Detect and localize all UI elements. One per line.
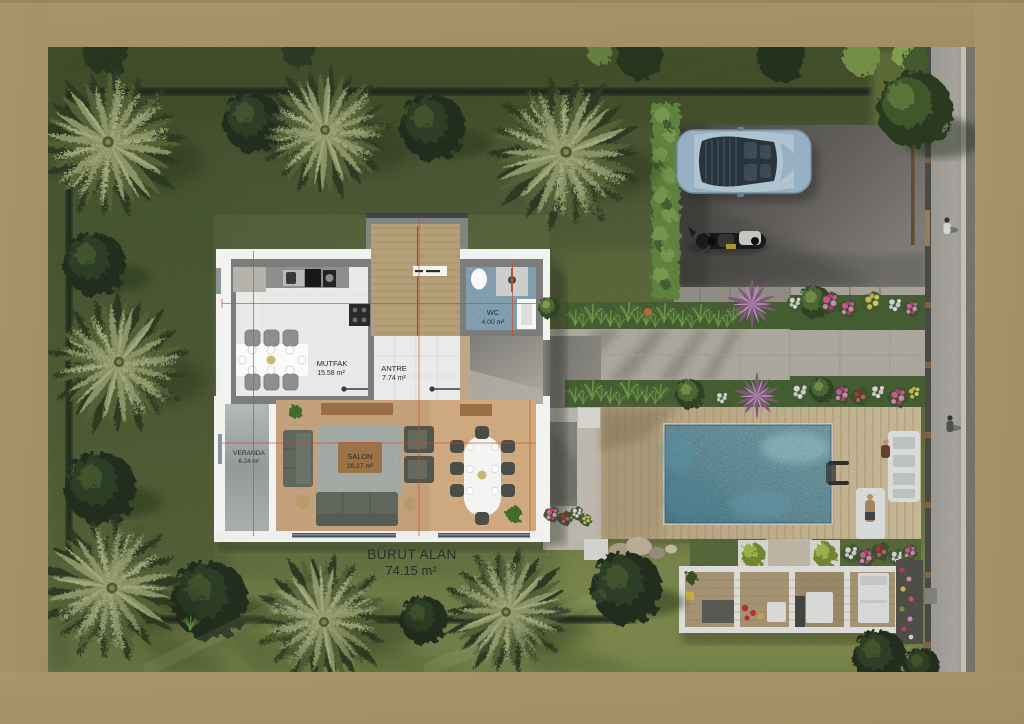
svg-text:SALON: SALON xyxy=(347,452,372,461)
svg-text:ANTRE: ANTRE xyxy=(381,364,407,373)
svg-text:15.58 m²: 15.58 m² xyxy=(317,370,345,377)
svg-text:26.27 m²: 26.27 m² xyxy=(347,463,375,470)
svg-text:4.00 m²: 4.00 m² xyxy=(481,319,505,326)
svg-text:MUTFAK: MUTFAK xyxy=(317,359,348,368)
svg-text:WC: WC xyxy=(487,308,500,317)
svg-text:6.24 m²: 6.24 m² xyxy=(239,458,260,465)
svg-text:VERANDA: VERANDA xyxy=(233,450,265,457)
svg-text:7.74 m²: 7.74 m² xyxy=(382,375,406,382)
